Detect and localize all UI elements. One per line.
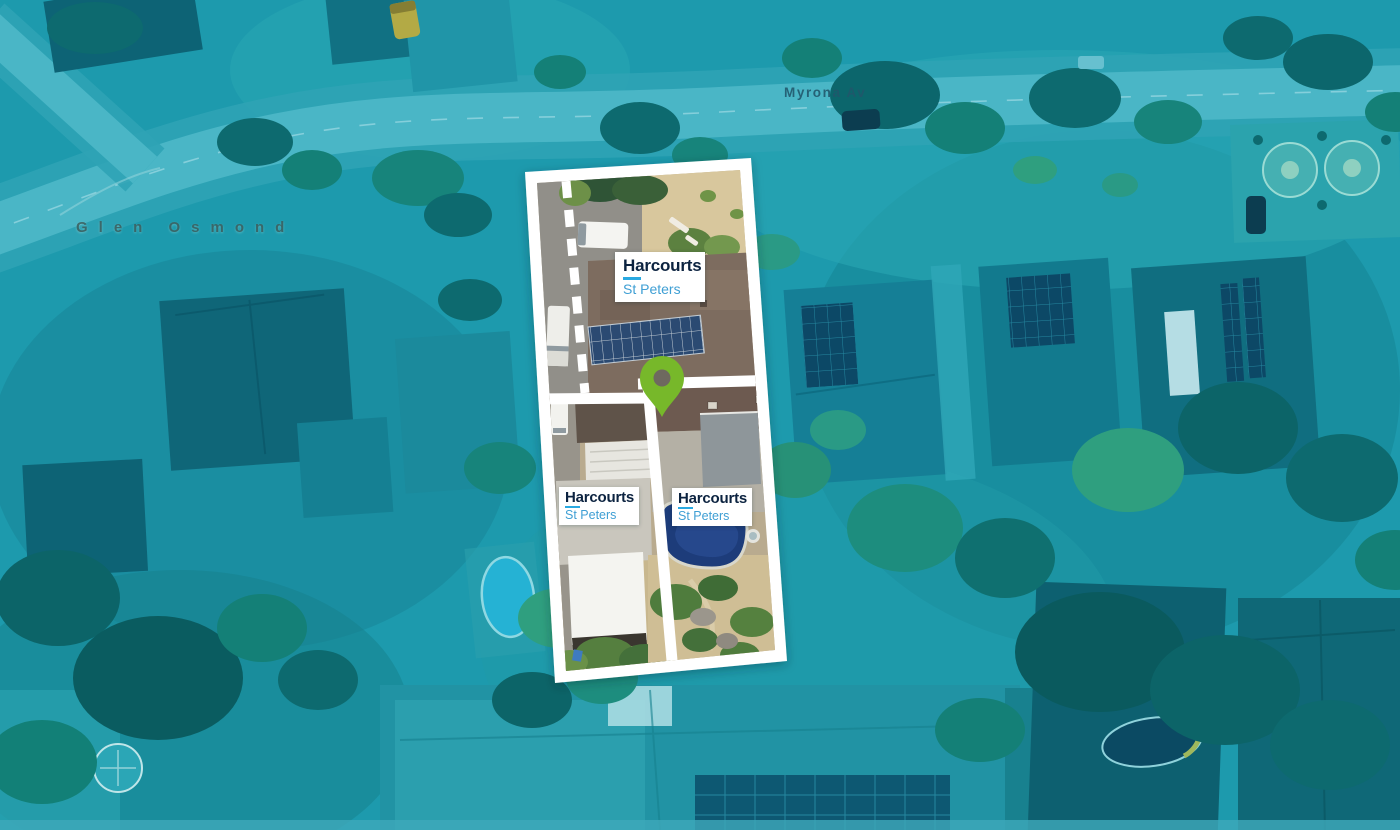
brand-name: Harcourts xyxy=(565,490,633,505)
property-marker-label-top[interactable]: Harcourts St Peters xyxy=(615,252,705,302)
property-marker-label-bottom-left[interactable]: Harcourts St Peters xyxy=(559,487,639,525)
office-name: St Peters xyxy=(565,509,633,522)
parked-truck xyxy=(546,306,570,367)
aerial-map-view[interactable]: Myrona Av Glen Osmond Harcourts St Peter… xyxy=(0,0,1400,830)
map-canvas[interactable] xyxy=(0,0,1400,830)
brand-name: Harcourts xyxy=(623,257,697,275)
office-name: St Peters xyxy=(678,510,746,523)
office-name: St Peters xyxy=(623,282,697,297)
brand-underline xyxy=(623,277,641,280)
property-marker-label-bottom-right[interactable]: Harcourts St Peters xyxy=(672,488,752,526)
brand-name: Harcourts xyxy=(678,491,746,506)
parked-van xyxy=(578,221,629,249)
